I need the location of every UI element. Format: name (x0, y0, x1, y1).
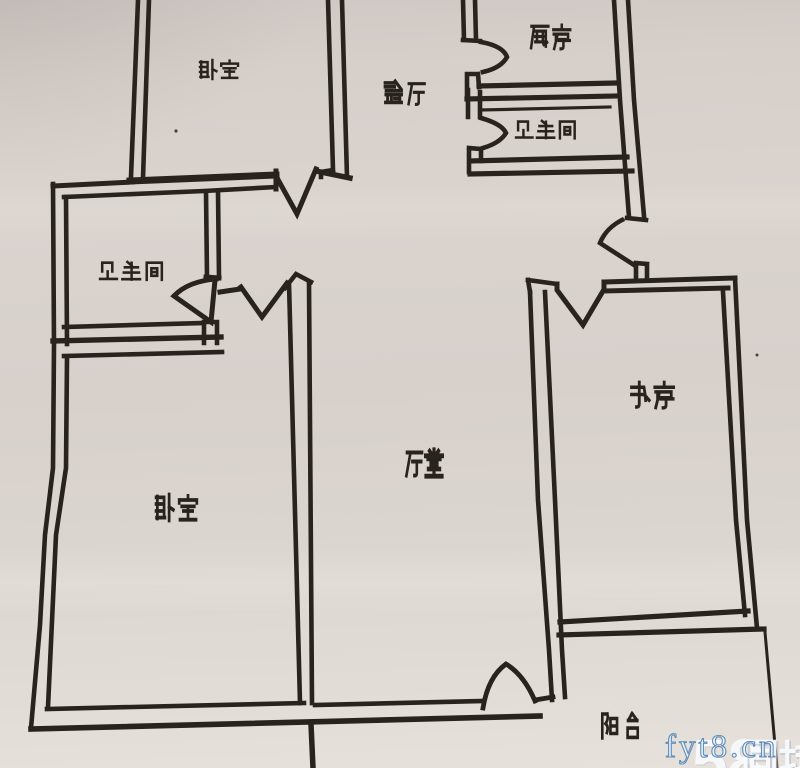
svg-text:fyt8.cn: fyt8.cn (665, 729, 779, 765)
